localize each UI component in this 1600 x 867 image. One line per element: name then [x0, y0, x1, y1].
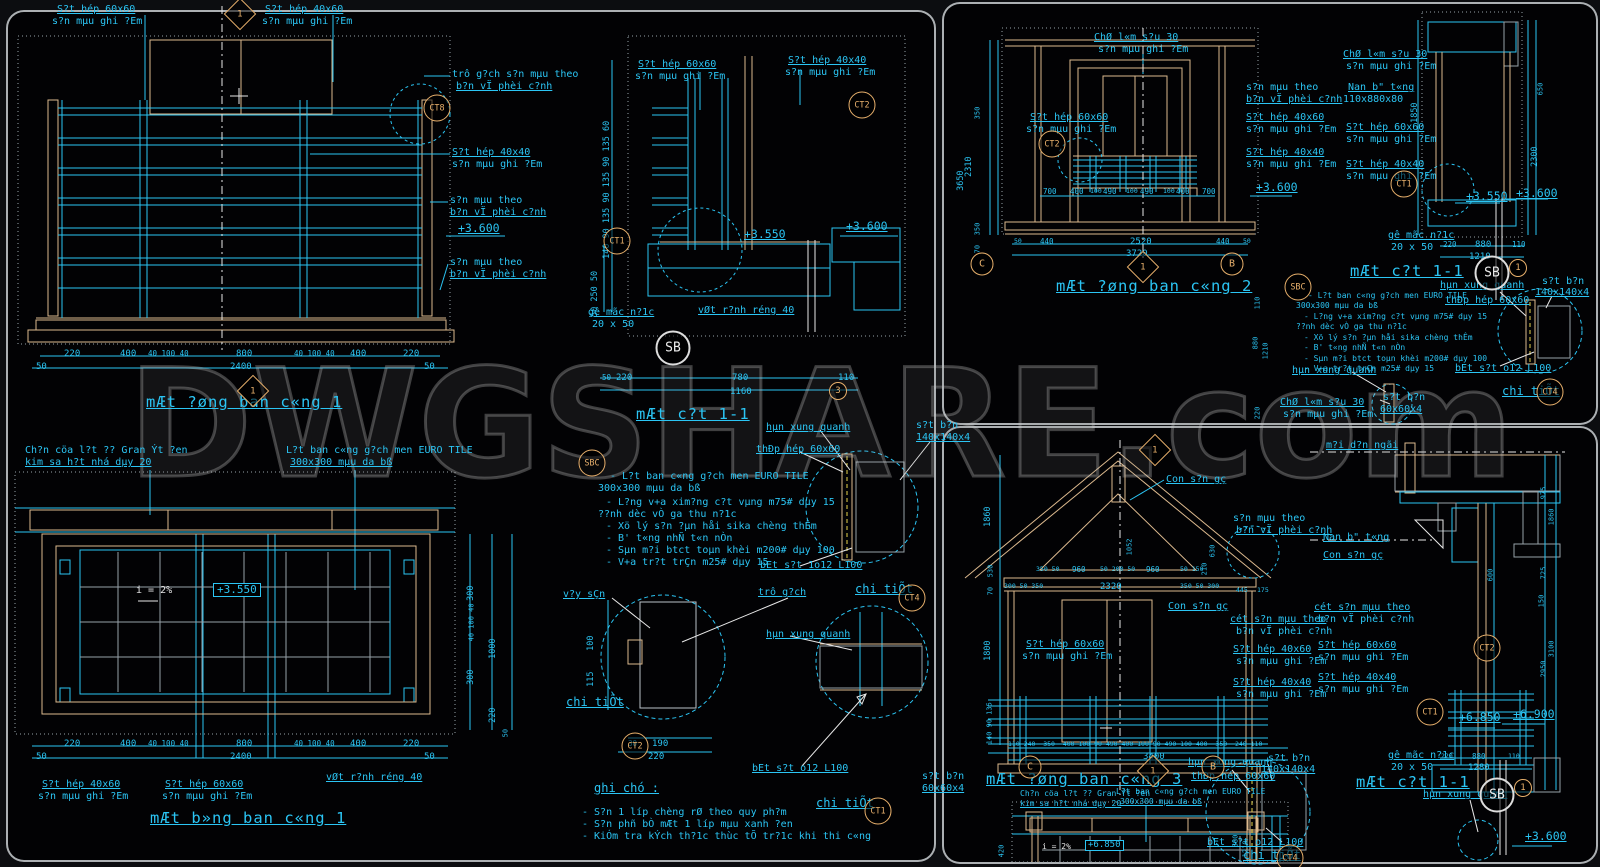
detail-marker: SBC — [579, 450, 606, 477]
cad-label: 400 — [350, 740, 366, 749]
plan1-drawing — [15, 470, 512, 758]
marker-circle: 1 — [1509, 259, 1527, 277]
cad-label: Con s?n gç — [1323, 551, 1383, 562]
grid-bubble: B — [1221, 253, 1244, 276]
cad-label: 175 — [1257, 587, 1269, 594]
cad-label: b?n vÏ phèi c?nh — [450, 208, 546, 219]
detail-marker: SBC — [1285, 274, 1312, 301]
cad-label: s?t b?n — [916, 421, 958, 432]
cad-label: 40 100 40 — [469, 603, 476, 641]
note: ??nh dèc vÒ ga thu n?1c — [598, 510, 736, 521]
note: - L?ng v+a xim?ng c?t vµng m75# dµy 15 — [1304, 313, 1487, 321]
cad-label: bEt s?t o12 L100 — [1455, 364, 1551, 375]
cad-label: 110 240 350 400 100 90 490 400 100 90 49… — [1008, 741, 1262, 748]
cad-label: 350 — [975, 107, 982, 120]
cad-label: s?t b?n — [922, 772, 964, 783]
cad-label: 60x60x4 — [922, 784, 964, 795]
cad-label: v?y sÇn — [563, 590, 605, 601]
cad-label: i = 2% — [136, 586, 172, 597]
marker-circle: 3 — [829, 382, 847, 400]
marker-sb: SB — [1480, 778, 1515, 813]
cad-label: 445 — [1236, 587, 1248, 594]
view-title-plan1: mÆt b»ng ban c«ng 1 — [150, 810, 346, 826]
cad-screenshot: DWGSHARE.com S?t hép 60x60s?n mµu ghi ?E… — [0, 0, 1600, 867]
cad-label: 150 — [1539, 595, 1546, 608]
note: - Xö lý s?n ?µn håi sika chèng thÊm — [606, 522, 817, 533]
cad-label: 2520 — [1130, 238, 1152, 247]
note: - B' t«ng nhÑ t«n nÒn — [606, 534, 732, 545]
cad-label: 530 — [988, 565, 995, 578]
cad-label: S?t hép 60x60 — [1026, 640, 1104, 651]
cad-label: 20 x 50 — [592, 320, 634, 331]
cad-label: s?n mµu ghi ?Em — [162, 792, 252, 803]
cad-label: 350 50 300 — [1180, 583, 1219, 590]
cad-label: 100 — [587, 636, 596, 651]
note: ??nh dèc vÒ ga thu n?1c — [1296, 323, 1407, 331]
note: - V+a tr?t trÇn m25# dµy 15 — [606, 558, 769, 569]
cad-label: s?n mµu ghi ?Em — [452, 160, 542, 171]
cad-label: 1052 — [1127, 538, 1134, 555]
elevation2-drawing — [990, 28, 1292, 258]
cad-label: 110 — [1512, 241, 1526, 249]
cad-label: S?t hép 40x60 — [1233, 645, 1311, 656]
cad-label: 100 — [1090, 188, 1102, 195]
cad-label: m?i d?n ngãi — [1326, 441, 1398, 452]
grid-bubble: C — [1019, 756, 1042, 779]
cad-label: 100 — [1163, 188, 1175, 195]
cad-label: +3.600 — [1516, 187, 1558, 199]
cad-label: S?t hép 60x60 — [1030, 113, 1108, 124]
cad-label: 600 — [1488, 569, 1495, 582]
cad-label: 400 — [120, 350, 136, 359]
cad-label: bEt s?t 1o12 L100 — [760, 561, 862, 572]
cad-label: 800 — [236, 740, 252, 749]
view-title-elev2: mÆt ?øng ban c«ng 2 — [1056, 278, 1252, 294]
cad-label: S?t hép 40x40 — [1346, 160, 1424, 171]
cad-label: 20 x 50 — [1391, 763, 1433, 774]
cad-label: 420 — [999, 845, 1006, 858]
detail-marker: CT1 — [1391, 171, 1418, 198]
cad-label: 400 — [350, 350, 366, 359]
cad-label: s?t b?n — [1542, 277, 1584, 288]
cad-label: 630 — [1210, 545, 1217, 558]
cad-label: L?t ban c«ng g?ch men EURO TILE — [1116, 788, 1265, 796]
cad-label: 50 — [424, 363, 435, 372]
cad-label: +3.600 — [1256, 181, 1298, 193]
cad-label: S?t hép 40x60 — [265, 5, 343, 16]
cad-label: b?n vÏ phèi c?nh — [456, 82, 552, 93]
cad-label: 110 — [1508, 753, 1520, 760]
cad-label: 725 — [1541, 567, 1548, 580]
cad-label: S?t hép 60x60 — [165, 780, 243, 791]
cad-label: hµn xung quanh — [766, 423, 850, 434]
cad-label: 220 — [489, 708, 498, 723]
cad-label: b?n vÏ phèi c?nh — [1236, 526, 1332, 537]
cad-label: kim sa h?t nhá dµy 20 — [1020, 800, 1121, 808]
cad-label: 220 — [1441, 753, 1453, 760]
cad-label: 220 — [64, 350, 80, 359]
cad-label: 40 100 40 — [148, 740, 189, 748]
cad-label: kim sa h?t nhá dµy 20 — [25, 458, 151, 469]
cad-label: ChØ l«m s?u 30 — [1094, 33, 1178, 44]
cad-label: 50 — [36, 753, 47, 762]
cad-label: +6.850 — [1459, 711, 1501, 723]
cad-label: 50 — [503, 729, 510, 737]
cad-label: s?n mµu ghi ?Em — [52, 17, 142, 28]
cad-label: 700 — [1043, 188, 1057, 196]
cad-label: 440 — [1216, 238, 1230, 246]
cad-label: s?n mµu ghi ?Em — [38, 792, 128, 803]
cad-label: 110 — [1255, 297, 1262, 310]
cad-label: 220 — [648, 753, 664, 762]
cad-label: S?t hép 40x40 — [1246, 148, 1324, 159]
notes-heading: ghi chó : — [594, 782, 659, 795]
cad-label: s?n mµu ghi ?Em — [635, 72, 725, 83]
note: - Xö lý s?n ?µn håi sika chèng thÊm — [1304, 334, 1473, 342]
cad-label: 2310 — [965, 156, 974, 176]
cad-label: 880 — [1475, 241, 1491, 250]
cad-label: b?n vÏ phèi c?nh — [1246, 95, 1342, 106]
cad-label: b?n vÏ phèi c?nh — [450, 270, 546, 281]
note: - KiÓm tra kÝch th?1c thùc tÕ tr?1c khi … — [582, 832, 871, 843]
cad-label: 220 — [403, 350, 419, 359]
cad-label: 20 x 50 — [1391, 243, 1433, 254]
view-title-sect3: mÆt c?t 1-1 — [1356, 774, 1470, 790]
cad-label: 50 — [1243, 238, 1251, 245]
cad-label: 100 — [1126, 188, 1138, 195]
cad-label: 220 — [1443, 241, 1457, 249]
view-boundaries — [15, 12, 1522, 862]
cad-label: 300 — [467, 586, 476, 601]
cad-label: s?n mµu ghi ?Em — [1318, 653, 1408, 664]
grid-bubble: B — [1202, 756, 1225, 779]
cad-label: 190 — [652, 740, 668, 749]
cad-label: s?n mµu ghi ?Em — [1246, 125, 1336, 136]
cad-label: 2400 — [230, 753, 252, 762]
cad-label: 3650 — [957, 170, 966, 190]
cad-label: 50 — [602, 374, 611, 382]
cad-label: 115 — [587, 672, 596, 687]
cad-label: thÐp hép 60x60 — [1445, 296, 1529, 307]
cad-label: s?n mµu ghi ?Em — [1236, 690, 1326, 701]
cad-label: 220 — [616, 374, 632, 383]
cad-label: 220 — [1255, 407, 1262, 420]
note: - B' t«ng nhÑ t«n nÒn — [1304, 344, 1405, 352]
note: - S?n 1 líp chèng rØ theo quy ph?m — [582, 808, 787, 819]
cad-label: Con s?n gç — [1168, 602, 1228, 613]
cad-label: 440 — [1040, 238, 1054, 246]
cad-label: i = 2% — [1042, 843, 1071, 851]
cad-label: S?t hép 40x40 — [1233, 678, 1311, 689]
cad-label: L?t ban c«ng g?ch men EURO TILE — [286, 446, 473, 457]
cad-label: 1280 — [1468, 764, 1490, 773]
cad-label: Ch?n cöa l?t ?? Gran Ýt ?en — [25, 446, 188, 457]
cad-label: S?t hép 60x60 — [57, 5, 135, 16]
cad-label: 40 100 40 — [294, 740, 335, 748]
cad-label: 140x140x4 — [916, 433, 970, 444]
cad-label: b?n vÏ phèi c?nh — [1236, 627, 1332, 638]
cad-label: s?n mµu ghi ?Em — [1026, 125, 1116, 136]
cad-label: 2400 — [230, 363, 252, 372]
cad-label: +3.600 — [846, 220, 888, 232]
cad-label: 400 — [1176, 188, 1190, 196]
cad-label: 140x140x4 — [1535, 288, 1589, 299]
cad-label: 1000 — [489, 638, 498, 658]
cad-label: 40 100 40 — [148, 350, 189, 358]
marker-sb: SB — [656, 331, 691, 366]
cad-label: s?n mµu ghi ?Em — [1346, 62, 1436, 73]
cad-label: trô g?ch — [758, 588, 806, 599]
note: - L?t ban c«ng g?ch men EURO TILE — [1308, 292, 1467, 300]
cad-label: chi tiÕt — [566, 696, 624, 709]
marker-sb: SB — [1475, 256, 1510, 291]
cad-label: 70 — [988, 587, 995, 595]
cad-label: 50 200 50 — [1100, 566, 1135, 573]
cad-label: 800 — [236, 350, 252, 359]
cad-label: S?t hép 40x60 — [42, 780, 120, 791]
detail-marker: CT1 — [1417, 699, 1444, 726]
cad-label: S?t hép 40x60 — [1246, 113, 1324, 124]
cad-label: s?n mµu ghi ?Em — [1318, 685, 1408, 696]
cad-label: trô g?ch s?n mµu theo — [452, 70, 578, 81]
cad-label: vØt r?nh réng 40 — [698, 306, 794, 317]
cad-label: s?t b?n — [1268, 754, 1310, 765]
note: - L?t ban c«ng g?ch men EURO TILE — [610, 472, 809, 483]
cad-label: s?n mµu ghi ?Em — [262, 17, 352, 28]
cad-label: s?n mµu ghi ?Em — [1283, 410, 1373, 421]
detail-marker: CT1 — [604, 228, 631, 255]
view-title-sect2: mÆt c?t 1-1 — [1350, 263, 1464, 279]
cad-label: +6.850 — [1085, 840, 1124, 851]
grid-bubble: C — [971, 253, 994, 276]
cad-label: s?n mµu ghi ?Em — [1246, 160, 1336, 171]
cad-label: 650 — [1538, 83, 1545, 96]
cad-label: Nan b" t«ng — [1323, 533, 1389, 544]
cad-label: 60x60x4 — [1380, 405, 1422, 416]
cad-label: 50 — [36, 363, 47, 372]
cad-label: vØt r?nh réng 40 — [326, 773, 422, 784]
cad-label: cét s?n mµu theo — [1314, 603, 1410, 614]
cad-label: +3.550 — [213, 583, 261, 597]
view-title-sect1: mÆt c?t 1-1 — [636, 406, 750, 422]
marker-circle: 1 — [1514, 779, 1532, 797]
cad-label: Nan b" t«ng — [1348, 83, 1414, 94]
cad-label: s?n mµu theo — [450, 196, 522, 207]
cad-label: 50 — [1014, 238, 1022, 245]
cad-label: 880 — [1472, 753, 1486, 761]
cad-label: S?t hép 40x40 — [788, 56, 866, 67]
cad-label: ChØ l«m s?u 30 — [1343, 50, 1427, 61]
cad-label: 350 — [975, 223, 982, 236]
cad-label: 400 — [1070, 188, 1084, 196]
cad-label: hµn xung quanh — [1292, 366, 1376, 377]
cad-label: 700 — [1202, 188, 1216, 196]
cad-label: 350 50 — [1036, 566, 1059, 573]
cad-label: 40 100 40 — [294, 350, 335, 358]
cad-label: 1160 — [730, 388, 752, 397]
detail-marker: CT2 — [1474, 635, 1501, 662]
cad-label: 3100 — [1549, 640, 1556, 657]
cad-label: s?n mµu ghi ?Em — [1346, 135, 1436, 146]
cad-label: 140 90 135 — [987, 702, 994, 744]
note: - S?n phñ bÒ mÆt 1 líp mµu xanh ?en — [582, 820, 793, 831]
cad-label: s?n mµu ghi ?Em — [1022, 652, 1112, 663]
cad-label: 960 — [1146, 566, 1160, 574]
cad-label: 975 — [1541, 487, 1548, 500]
cad-label: S?t hép 40x40 — [452, 148, 530, 159]
cad-label: hµn xung quanh — [766, 630, 850, 641]
cad-label: s?n mµu theo — [1246, 83, 1318, 94]
cad-label: 2300 — [1531, 146, 1540, 166]
cad-label: 300 — [467, 670, 476, 685]
cad-label: +3.550 — [1466, 190, 1508, 202]
cad-label: gê mãc n?1c — [588, 308, 654, 319]
cad-label: b?n vÏ phèi c?nh — [1318, 615, 1414, 626]
cad-label: s?t b?n — [1383, 393, 1425, 404]
cad-label: s?n mµu theo — [450, 258, 522, 269]
cad-label: +3.600 — [458, 222, 500, 234]
cad-label: 50 150 — [1180, 566, 1203, 573]
cad-label: 220 — [403, 740, 419, 749]
cad-label: 1850 — [1411, 102, 1420, 122]
cad-label: 300 50 350 — [1004, 583, 1043, 590]
cad-label: s?n mµu ghi ?Em — [1098, 45, 1188, 56]
cad-label: 960 — [1072, 566, 1086, 574]
cad-label: ChØ l«m s?u 30 — [1280, 398, 1364, 409]
cad-label: 220 — [64, 740, 80, 749]
cad-label: 110x880x80 — [1343, 95, 1403, 106]
detail-marker: CT2 — [1039, 131, 1066, 158]
cad-label: 2950 — [1541, 660, 1548, 677]
cad-label: Con s?n gç — [1166, 475, 1226, 486]
cad-label: 140x140x4 — [1261, 765, 1315, 776]
cad-label: 490 — [1140, 188, 1154, 196]
cad-label: 300x300 mµu da bß — [1120, 798, 1202, 806]
elevation1-drawing — [28, 6, 505, 368]
cad-label: bEt s?t o12 L100 — [752, 764, 848, 775]
note: - L?ng v+a xim?ng c?t vµng m75# dµy 15 — [606, 498, 835, 509]
cad-label: S?t hép 60x60 — [1346, 123, 1424, 134]
cad-label: 50 — [424, 753, 435, 762]
note: 300x300 mµu da bß — [1296, 302, 1378, 310]
cad-label: 1860 — [984, 506, 993, 526]
note: - Sµn m?i btct toµn khèi m200# dµy 100 — [606, 546, 835, 557]
detail-marker: CT2 — [849, 92, 876, 119]
cad-label: +6.900 — [1513, 708, 1555, 720]
detail-marker: CT4 — [1277, 845, 1304, 867]
cad-label: 1800 — [984, 640, 993, 660]
cad-label: 2320 — [1100, 583, 1122, 592]
cad-label: +3.550 — [744, 228, 786, 240]
cad-label: 1210 — [1263, 342, 1270, 359]
cad-label: s?n mµu ghi ?Em — [1236, 657, 1326, 668]
note: 300x300 mµu da bß — [598, 484, 700, 495]
cad-label: S?t hép 60x60 — [638, 60, 716, 71]
cad-label: S?t hép 60x60 — [1318, 641, 1396, 652]
detail-marker: CT4 — [1537, 379, 1564, 406]
cad-label: s?n mµu theo — [1233, 514, 1305, 525]
cad-label: 300x300 mµu da bß — [290, 458, 392, 469]
detail-marker: CT1 — [865, 798, 892, 825]
cad-label: 1860 — [1549, 508, 1556, 525]
cad-label: cét s?n mµu theo — [1230, 615, 1326, 626]
detail-marker: CT4 — [899, 585, 926, 612]
cad-label: 780 — [732, 374, 748, 383]
cad-label: 490 — [1103, 188, 1117, 196]
cad-label: +3.600 — [1525, 830, 1567, 842]
cad-label: 880 — [1253, 337, 1260, 350]
detail-marker: CT8 — [424, 95, 451, 122]
detail-marker: CT2 — [622, 733, 649, 760]
cad-label: 400 — [120, 740, 136, 749]
cad-label: S?t hép 40x40 — [1318, 673, 1396, 684]
cad-label: s?n mµu ghi ?Em — [785, 68, 875, 79]
cad-label: thÐp hép 60x60 — [756, 445, 840, 456]
